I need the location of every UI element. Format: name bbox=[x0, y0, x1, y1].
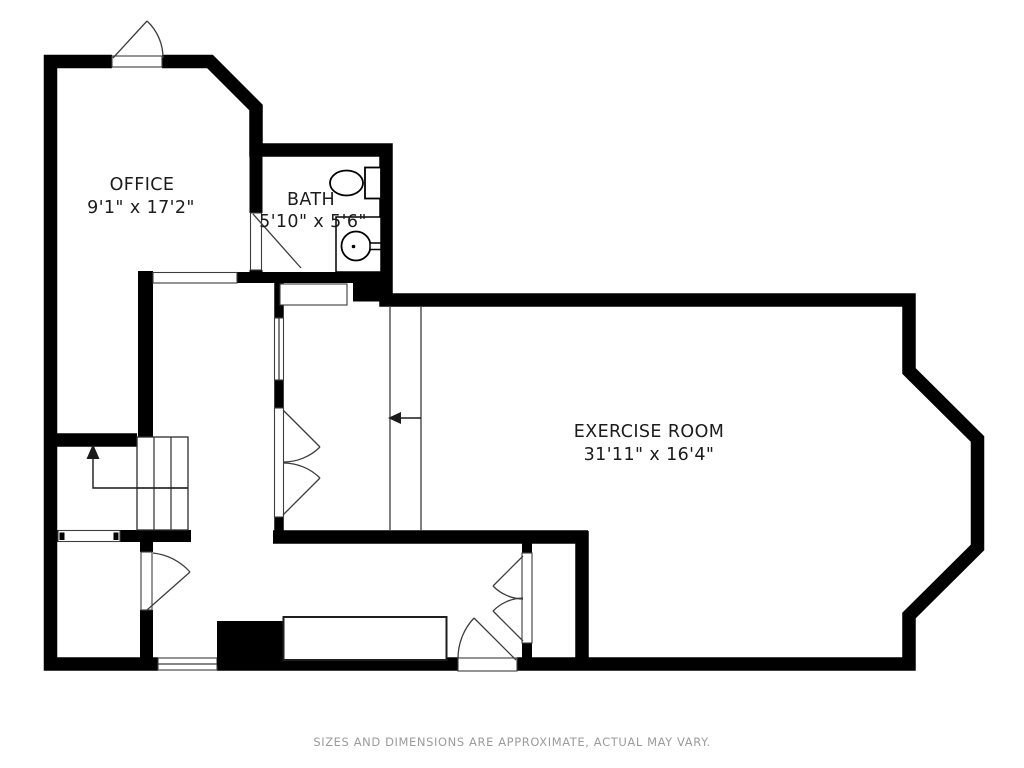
bath-label: BATH bbox=[287, 190, 335, 210]
office-hall-opening bbox=[153, 273, 237, 284]
lower-room-door-swing-icon bbox=[147, 553, 190, 610]
floorplan-canvas: OFFICE 9'1" x 17'2" BATH 5'10" x 5'6" EX… bbox=[0, 0, 1024, 768]
exercise-room-dimensions: 31'11" x 16'4" bbox=[584, 445, 715, 465]
disclaimer-text: SIZES AND DIMENSIONS ARE APPROXIMATE, AC… bbox=[313, 735, 710, 749]
door-swings bbox=[113, 21, 523, 660]
lower-room-door-threshold bbox=[141, 552, 152, 610]
stairs-icon bbox=[87, 437, 189, 530]
office-dimensions: 9'1" x 17'2" bbox=[87, 198, 195, 218]
built-in-cabinet bbox=[284, 617, 447, 660]
hall-window-icon bbox=[275, 318, 284, 380]
office-label: OFFICE bbox=[110, 175, 175, 195]
hall-exercise-opening bbox=[280, 284, 347, 305]
chimney-block bbox=[217, 621, 283, 666]
hall-exercise-wall-junction bbox=[353, 283, 392, 302]
closet-door-threshold bbox=[522, 553, 532, 643]
stair-room-window-icon bbox=[58, 531, 120, 542]
office-entry-threshold bbox=[112, 56, 162, 67]
bottom-window-icon bbox=[158, 658, 217, 670]
floorplan-page: OFFICE 9'1" x 17'2" BATH 5'10" x 5'6" EX… bbox=[0, 0, 1024, 768]
office-entry-door-swing-icon bbox=[113, 21, 163, 58]
exercise-room-label: EXERCISE ROOM bbox=[574, 422, 725, 442]
entry-door-swing-icon bbox=[458, 618, 516, 660]
closet-double-door-icon bbox=[493, 556, 523, 641]
bath-dimensions: 5'10" x 5'6" bbox=[259, 212, 367, 232]
french-door-threshold bbox=[275, 408, 284, 517]
toilet-icon bbox=[330, 168, 381, 199]
left-arrow-icon bbox=[388, 412, 421, 424]
outer-walls bbox=[51, 62, 978, 665]
entry-door-threshold bbox=[458, 658, 517, 671]
french-double-door-icon bbox=[283, 410, 320, 515]
outer-wall-right-bay bbox=[162, 62, 978, 665]
level-change-lines bbox=[388, 307, 421, 530]
